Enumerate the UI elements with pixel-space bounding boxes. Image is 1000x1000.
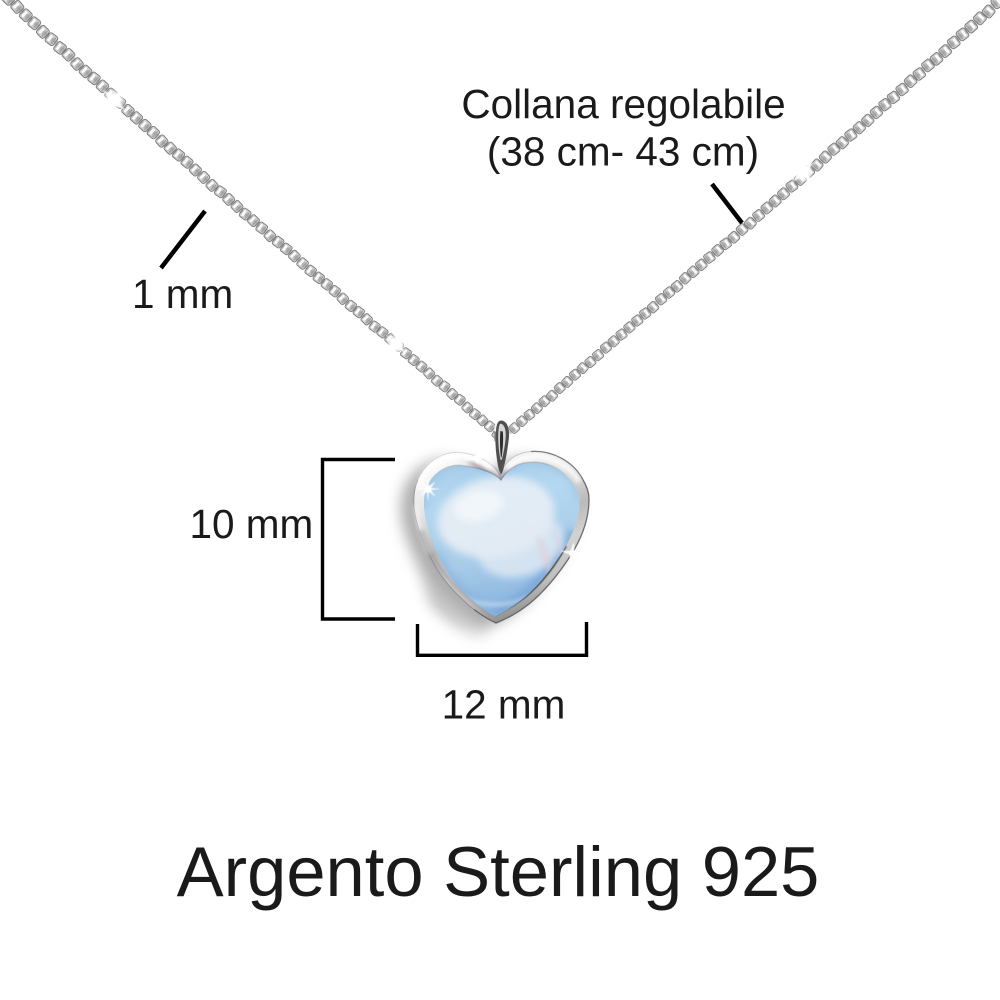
- svg-text:(38 cm- 43 cm): (38 cm- 43 cm): [487, 129, 759, 175]
- svg-text:10 mm: 10 mm: [190, 501, 314, 547]
- svg-text:12 mm: 12 mm: [442, 682, 566, 728]
- svg-text:Argento Sterling 925: Argento Sterling 925: [177, 832, 820, 911]
- svg-text:Collana regolabile: Collana regolabile: [461, 81, 785, 127]
- svg-text:1 mm: 1 mm: [132, 271, 233, 317]
